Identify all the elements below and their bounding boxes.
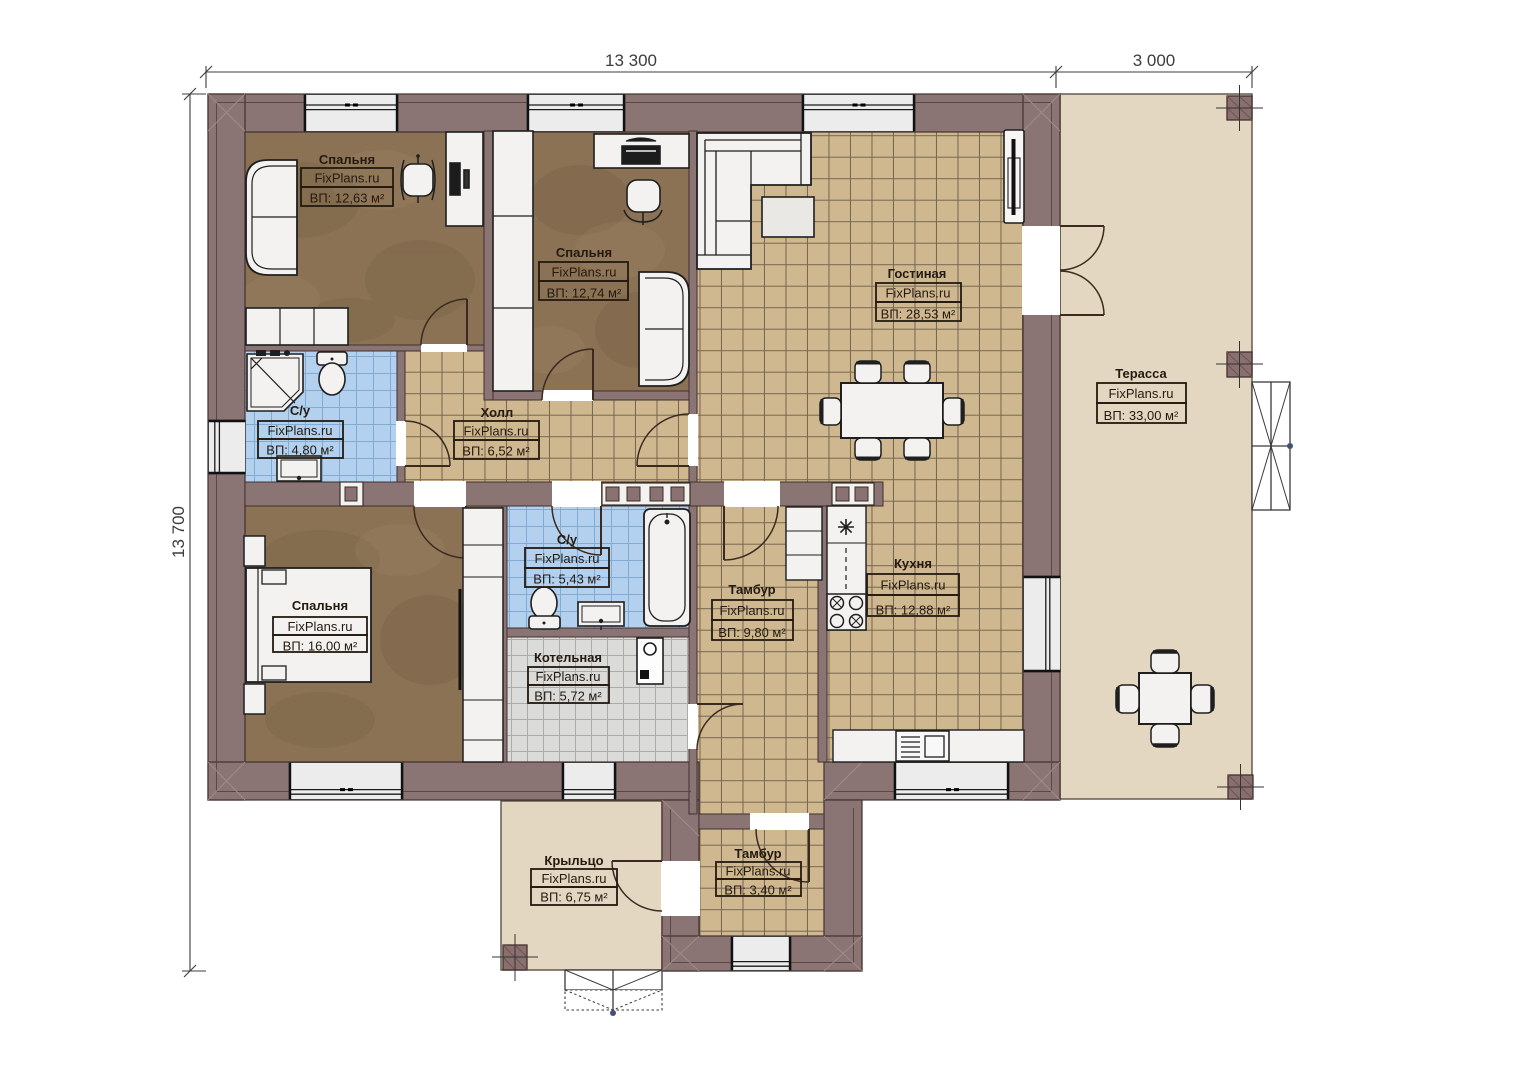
svg-text:FixPlans.ru: FixPlans.ru (719, 603, 784, 618)
svg-text:ВП: 4,80 м²: ВП: 4,80 м² (266, 443, 334, 458)
svg-text:FixPlans.ru: FixPlans.ru (885, 286, 950, 301)
svg-text:Котельная: Котельная (534, 650, 602, 665)
svg-text:Крыльцо: Крыльцо (544, 853, 603, 868)
svg-text:FixPlans.ru: FixPlans.ru (534, 551, 599, 566)
svg-text:FixPlans.ru: FixPlans.ru (535, 669, 600, 684)
svg-text:FixPlans.ru: FixPlans.ru (463, 424, 528, 439)
svg-text:Холл: Холл (481, 405, 514, 420)
svg-text:ВП: 12,74 м²: ВП: 12,74 м² (547, 286, 622, 301)
svg-text:ВП: 12,88 м²: ВП: 12,88 м² (876, 603, 951, 618)
svg-text:Гостиная: Гостиная (888, 266, 947, 281)
svg-text:13 300: 13 300 (605, 51, 657, 70)
svg-text:FixPlans.ru: FixPlans.ru (1108, 386, 1173, 401)
svg-text:FixPlans.ru: FixPlans.ru (287, 619, 352, 634)
svg-text:ВП: 16,00 м²: ВП: 16,00 м² (283, 639, 358, 654)
svg-text:ВП: 3,40 м²: ВП: 3,40 м² (724, 883, 792, 898)
svg-text:FixPlans.ru: FixPlans.ru (880, 578, 945, 593)
svg-text:Тамбур: Тамбур (728, 582, 775, 597)
svg-text:ВП: 9,80 м²: ВП: 9,80 м² (718, 625, 786, 640)
svg-text:ВП: 6,75 м²: ВП: 6,75 м² (540, 890, 608, 905)
svg-text:FixPlans.ru: FixPlans.ru (314, 171, 379, 186)
svg-text:Терасса: Терасса (1115, 366, 1167, 381)
svg-text:Тамбур: Тамбур (734, 846, 781, 861)
svg-text:FixPlans.ru: FixPlans.ru (267, 423, 332, 438)
svg-text:FixPlans.ru: FixPlans.ru (541, 871, 606, 886)
svg-text:С/у: С/у (557, 532, 578, 547)
svg-text:3 000: 3 000 (1133, 51, 1176, 70)
svg-text:FixPlans.ru: FixPlans.ru (725, 864, 790, 879)
svg-text:Кухня: Кухня (894, 556, 932, 571)
svg-text:Спальня: Спальня (319, 152, 375, 167)
svg-text:ВП: 5,43 м²: ВП: 5,43 м² (533, 572, 601, 587)
svg-text:13 700: 13 700 (169, 506, 188, 558)
svg-text:ВП: 28,53 м²: ВП: 28,53 м² (881, 307, 956, 322)
svg-text:Спальня: Спальня (292, 598, 348, 613)
svg-text:FixPlans.ru: FixPlans.ru (551, 265, 616, 280)
svg-text:С/у: С/у (290, 403, 311, 418)
svg-text:ВП: 5,72 м²: ВП: 5,72 м² (534, 689, 602, 704)
svg-text:Спальня: Спальня (556, 245, 612, 260)
svg-text:ВП: 33,00 м²: ВП: 33,00 м² (1104, 408, 1179, 423)
svg-text:ВП: 12,63 м²: ВП: 12,63 м² (310, 191, 385, 206)
svg-text:ВП: 6,52 м²: ВП: 6,52 м² (462, 444, 530, 459)
